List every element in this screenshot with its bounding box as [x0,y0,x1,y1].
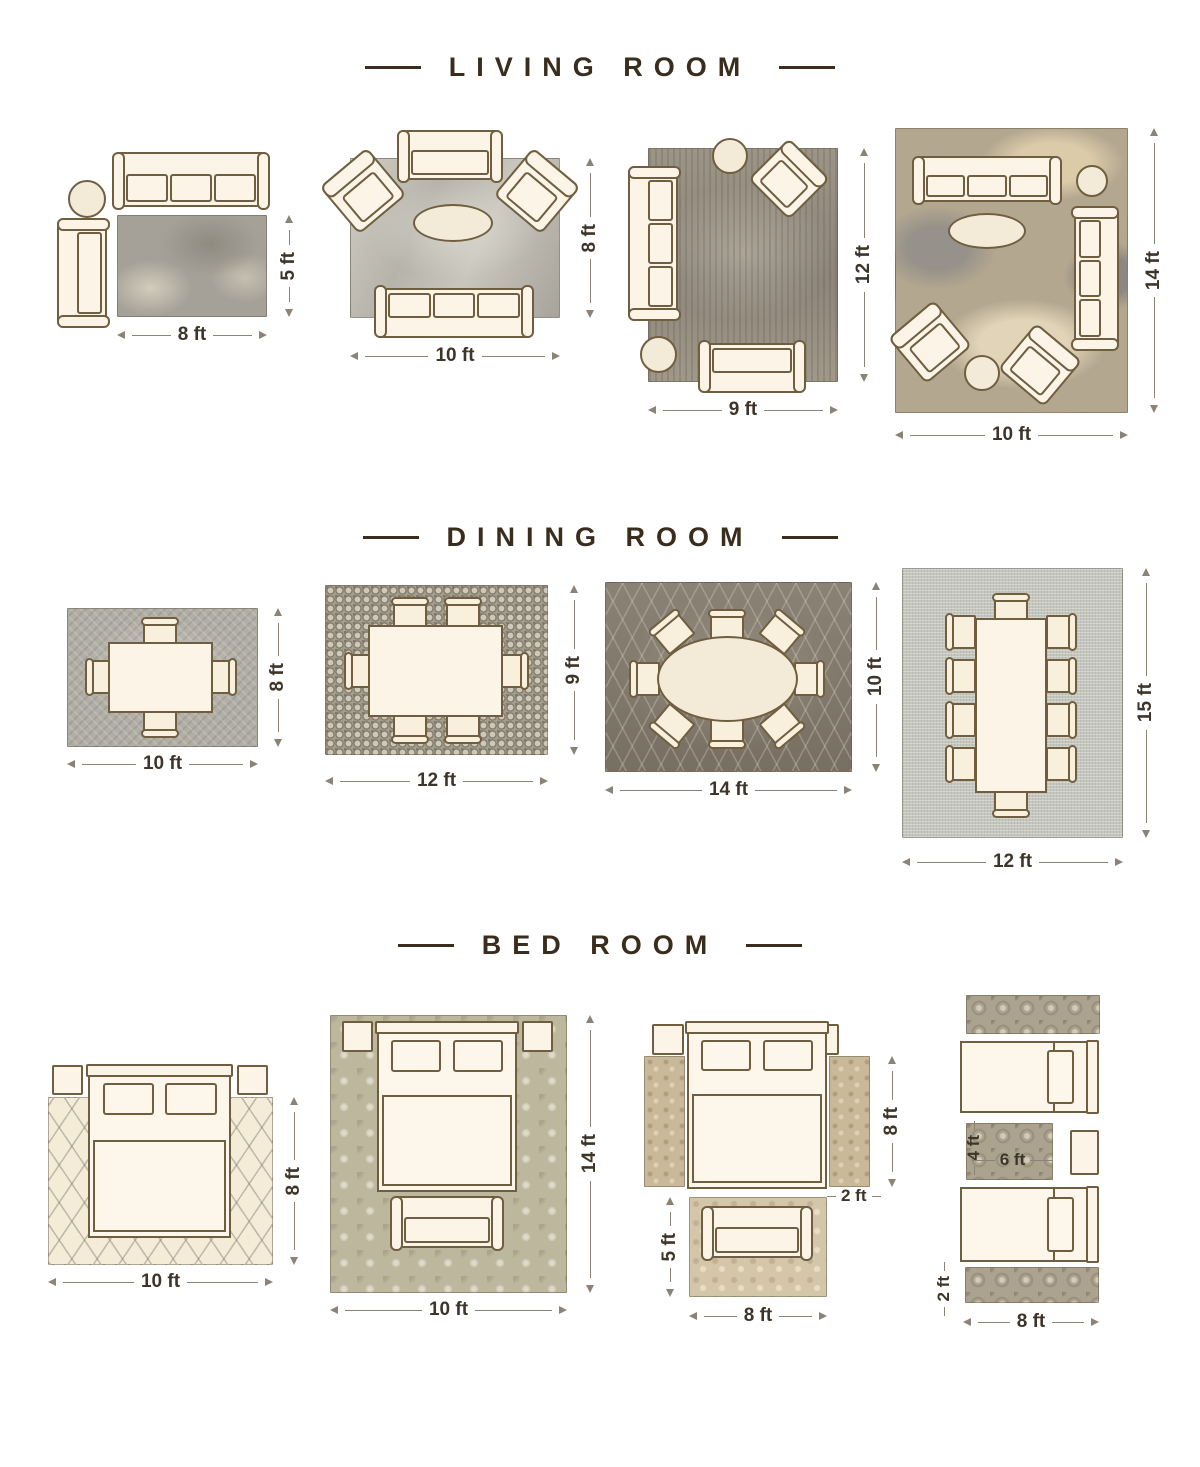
dining-chair [1046,703,1074,737]
sofa [374,288,534,338]
dining-room-layout-1: 8 ft 10 ft [40,580,320,790]
sofa-cushions [77,232,102,314]
living-room-layout-3: 12 ft 9 ft [620,130,890,430]
bed [88,1065,231,1238]
blanket [960,1187,1055,1262]
dining-table-oval [657,636,798,722]
width-dimension: 12 ft [325,769,548,793]
bed [687,1022,827,1189]
blanket [93,1140,225,1232]
dining-chair [1046,615,1074,649]
sofa-cushions [126,174,256,202]
living-room-layout-4: 14 ft 10 ft [890,110,1200,450]
coffee-table [948,213,1026,249]
pillows [103,1083,217,1115]
bench [701,1206,813,1258]
width-dimension: 10 ft [895,423,1128,447]
dining-chair [948,615,976,649]
title-dash-left [398,944,454,947]
width-dimension: 8 ft [117,323,267,347]
nightstand [237,1065,268,1095]
height-dimension: 8 ft [578,158,602,318]
rug-size-guide: LIVING ROOM 5 ft 8 ft [0,0,1200,1467]
width-dimension: 10 ft [67,752,258,776]
height-dimension: 5 ft [277,215,301,317]
runner-width-dimension: 2 ft [827,1184,877,1208]
pillow [1047,1197,1074,1252]
mat-width-dimension: 6 ft [972,1148,1053,1172]
dining-chair [794,662,822,696]
height-dimension: 14 ft [1142,128,1166,413]
chaise [57,218,107,328]
height-dimension: 8 ft [266,608,290,747]
width-dimension: 10 ft [330,1298,567,1322]
sofa [112,152,270,207]
title-dash-left [365,66,421,69]
dining-chair [632,662,660,696]
rug-width-dimension: 8 ft [689,1304,827,1328]
width-dimension: 10 ft [48,1270,273,1294]
twin-bed [960,1187,1099,1262]
title-dash-right [779,66,835,69]
sofa [628,166,678,321]
loveseat [698,343,806,393]
height-dimension: 14 ft [578,1015,602,1293]
dining-room-layout-4: 15 ft 12 ft [890,560,1200,880]
width-dimension: 10 ft [350,344,560,368]
width-dimension: 9 ft [648,398,838,422]
runner-rug-right [829,1056,870,1187]
headboard [685,1021,829,1034]
ottoman [964,355,1000,391]
headboard [86,1064,233,1077]
sofa-arm [57,218,110,231]
dining-chair [948,747,976,781]
ottoman [640,336,677,373]
nightstand [1070,1130,1099,1175]
sofa-arm [57,315,110,328]
height-dimension: 9 ft [562,585,586,755]
side-table [712,138,748,174]
blanket [960,1041,1055,1113]
section-title-dining-room: DINING ROOM [0,522,1200,553]
dining-table [108,642,213,713]
title-dash-right [782,536,838,539]
dining-chair [948,659,976,693]
bed [377,1022,517,1192]
dining-table [975,618,1047,793]
bed-room-layout-3: 8 ft 2 ft 5 ft 8 ft [630,1010,910,1335]
dining-room-layout-2: 9 ft 12 ft [310,570,600,805]
runner-rug-left [644,1056,685,1187]
side-table [68,180,106,218]
runner-rug-bottom [965,1267,1099,1303]
dining-chair [1046,659,1074,693]
dining-table [368,625,503,717]
section-title-bed-room: BED ROOM [0,930,1200,961]
living-room-layout-1: 5 ft 8 ft [40,120,320,365]
width-dimension: 14 ft [605,778,852,802]
coffee-table [413,204,493,242]
headboard [375,1021,519,1034]
rug-8x5 [117,215,267,317]
section-title-text: DINING ROOM [447,522,754,553]
section-title-living-room: LIVING ROOM [0,52,1200,83]
blanket [692,1094,821,1183]
nightstand [522,1021,553,1052]
pillows [391,1040,503,1072]
nightstand [652,1024,684,1055]
title-dash-left [363,536,419,539]
bed-room-layout-2: 14 ft 10 ft [320,1000,610,1325]
dining-room-layout-3: 10 ft 14 ft [590,570,890,815]
height-dimension: 12 ft [852,148,876,382]
bed-room-layout-4: 4 ft 6 ft 2 ft 8 ft [910,980,1200,1355]
runner-length-dimension: 8 ft [963,1310,1099,1334]
twin-bed [960,1041,1099,1113]
height-dimension: 10 ft [864,582,888,772]
side-table [1076,165,1108,197]
nightstand [52,1065,83,1095]
runner-rug-top [966,995,1100,1034]
section-title-text: LIVING ROOM [449,52,752,83]
sofa [912,156,1062,202]
blanket [382,1095,511,1185]
runner-length-dimension: 8 ft [880,1056,904,1187]
bench [390,1196,504,1248]
sofa-arm [257,152,270,210]
headboard [1086,1186,1099,1263]
dining-chair [1046,747,1074,781]
runner-height-dimension: 2 ft [932,1262,956,1308]
pillow [1047,1050,1074,1103]
bed-room-layout-1: 8 ft 10 ft [30,1040,320,1330]
rug-height-dimension: 5 ft [658,1197,682,1297]
loveseat [397,130,503,180]
living-room-layout-2: 8 ft 10 ft [330,118,620,373]
nightstand [342,1021,373,1052]
title-dash-right [746,944,802,947]
height-dimension: 15 ft [1134,568,1158,838]
dining-chair [948,703,976,737]
headboard [1086,1040,1099,1114]
sofa [1074,206,1119,351]
width-dimension: 12 ft [902,850,1123,874]
pillows [701,1040,813,1071]
section-title-text: BED ROOM [482,930,719,961]
sofa-arm [112,152,125,210]
height-dimension: 8 ft [282,1097,306,1265]
